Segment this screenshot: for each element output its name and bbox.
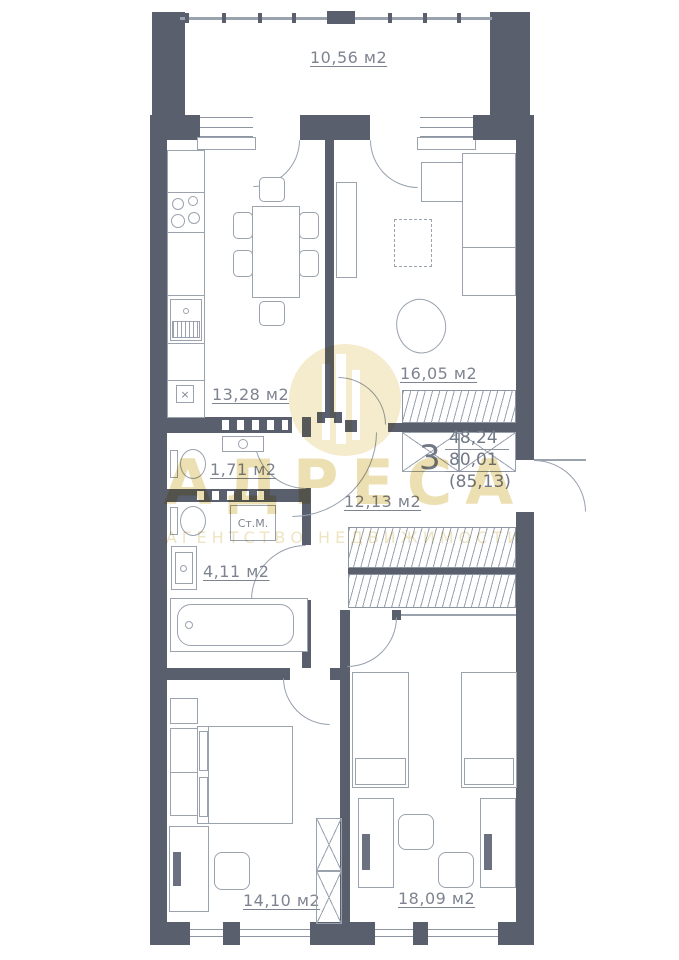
stove-burner [188, 196, 198, 206]
counter-divider [167, 192, 205, 193]
plumbing-riser [171, 491, 181, 501]
bottom-wall-pier [150, 922, 190, 945]
stove-burner [188, 212, 200, 224]
kitchen-unit-mark: × [176, 385, 194, 403]
living-window-sill [417, 137, 476, 150]
bathtub-inner [177, 604, 294, 646]
bath-bottom-wall [167, 668, 290, 680]
door-stop [317, 412, 325, 423]
unit-total-area: (85,13) [445, 472, 509, 493]
bottom-wall-pier [413, 922, 428, 945]
shelf [170, 698, 198, 724]
kitchen-window [200, 117, 253, 137]
living-wardrobe [402, 390, 516, 423]
balcony-railing-post [222, 13, 226, 23]
bottom-wall-pier [310, 922, 375, 945]
left-wall [150, 115, 167, 925]
living-balcony-door-arc [370, 140, 418, 188]
toilet-bowl [180, 506, 206, 536]
monitor [484, 834, 492, 870]
dresser-divider [170, 772, 198, 773]
wc-bath-wall [167, 489, 310, 502]
hallway-area-label: 12,13 м2 [344, 492, 421, 511]
double-bed [197, 726, 293, 824]
vent-squares [197, 491, 272, 500]
dining-chair [233, 250, 253, 277]
desk-chair [398, 814, 434, 850]
dining-table [252, 206, 300, 298]
coffee-table [394, 219, 432, 267]
balcony-wall-right [490, 12, 530, 116]
wc-area-label: 1,71 м2 [210, 460, 276, 479]
counter-divider [167, 232, 205, 233]
balcony-railing-post [292, 13, 296, 23]
bed-blanket [355, 758, 406, 785]
bedroom2-window-left [375, 929, 413, 937]
sofa-cushion-line [462, 247, 516, 248]
counter-divider [167, 343, 205, 344]
right-wall-upper [516, 115, 534, 460]
wc-basin-bowl [238, 439, 248, 449]
tall-cabinet [336, 182, 357, 278]
bedroom1-cabinet [316, 818, 342, 871]
bedroom2-door-arc [347, 617, 397, 667]
kitchen-bottom-wall [167, 417, 292, 433]
living-door-arc [338, 377, 386, 425]
bedroom2-wardrobe [348, 574, 516, 608]
dining-chair [259, 301, 285, 326]
washing-machine-label: Ст.М. [230, 505, 276, 541]
pillow [199, 731, 208, 771]
kitchen-living-divider [325, 140, 334, 418]
kitchen-counter [167, 150, 205, 418]
right-wall-lower [516, 512, 534, 925]
counter-divider [167, 295, 205, 296]
floor-plan: 10,56 м2 [0, 0, 679, 960]
bedroom2-top-wall [397, 614, 516, 616]
pillow [199, 777, 208, 817]
toilet-tank [170, 450, 178, 478]
bathroom-area-label: 4,11 м2 [203, 562, 269, 581]
bedroom1-door-arc [283, 678, 330, 725]
bed-headboard-line [208, 726, 209, 824]
unit-area-stack: 48,24 80,01 (85,13) [445, 428, 509, 493]
balcony-railing-post [258, 13, 262, 23]
stove-burner [172, 198, 184, 210]
bathtub-drain [185, 621, 193, 629]
kitchen-window-sill [197, 137, 256, 150]
balcony-railing-post [185, 13, 189, 23]
bed-blanket [464, 758, 514, 785]
balcony-railing-post [388, 13, 392, 23]
balcony-railing-post [457, 13, 461, 23]
unit-floor-area: 80,01 [445, 450, 509, 472]
monitor [362, 834, 370, 870]
balcony-wall-left [152, 12, 185, 116]
dining-chair [233, 212, 253, 239]
bedroom1-window-left [190, 929, 223, 937]
desk-chair [214, 852, 250, 890]
balcony-railing-block [327, 11, 355, 24]
dining-chair [299, 212, 319, 239]
toilet-tank [170, 507, 178, 535]
bedroom2-area-label: 18,09 м2 [398, 889, 475, 908]
balcony-railing-post [423, 13, 427, 23]
armchair [386, 290, 455, 361]
bedroom1-area-label: 14,10 м2 [243, 891, 320, 910]
living-area-label: 16,05 м2 [400, 364, 477, 383]
stove-burner [171, 214, 185, 228]
desk-chair [438, 852, 474, 888]
kitchen-area-label: 13,28 м2 [212, 385, 289, 404]
monitor [173, 852, 181, 886]
basin-drain [180, 565, 187, 572]
sink-faucet [183, 308, 189, 314]
bedroom1-cabinet [316, 871, 342, 924]
entrance-door-leaf [534, 459, 586, 461]
living-window [420, 117, 473, 137]
sink-drainboard [172, 321, 200, 338]
bedroom2-window [428, 929, 498, 937]
bedroom1-window [240, 929, 310, 937]
dining-chair [299, 250, 319, 277]
vent-squares [222, 420, 288, 430]
top-wall-seg [300, 115, 370, 140]
dining-chair [259, 177, 285, 202]
counter-divider [167, 380, 205, 381]
sofa-chaise [462, 153, 516, 296]
balcony-area-label: 10,56 м2 [310, 48, 387, 67]
bottom-wall-pier [498, 922, 534, 945]
hallway-wardrobe [348, 527, 516, 568]
unit-rooms-count: 3 [419, 438, 441, 478]
bottom-wall-pier [223, 922, 240, 945]
entrance-door-arc [534, 460, 586, 512]
unit-living-area: 48,24 [445, 428, 509, 450]
toilet-bowl [180, 449, 206, 479]
